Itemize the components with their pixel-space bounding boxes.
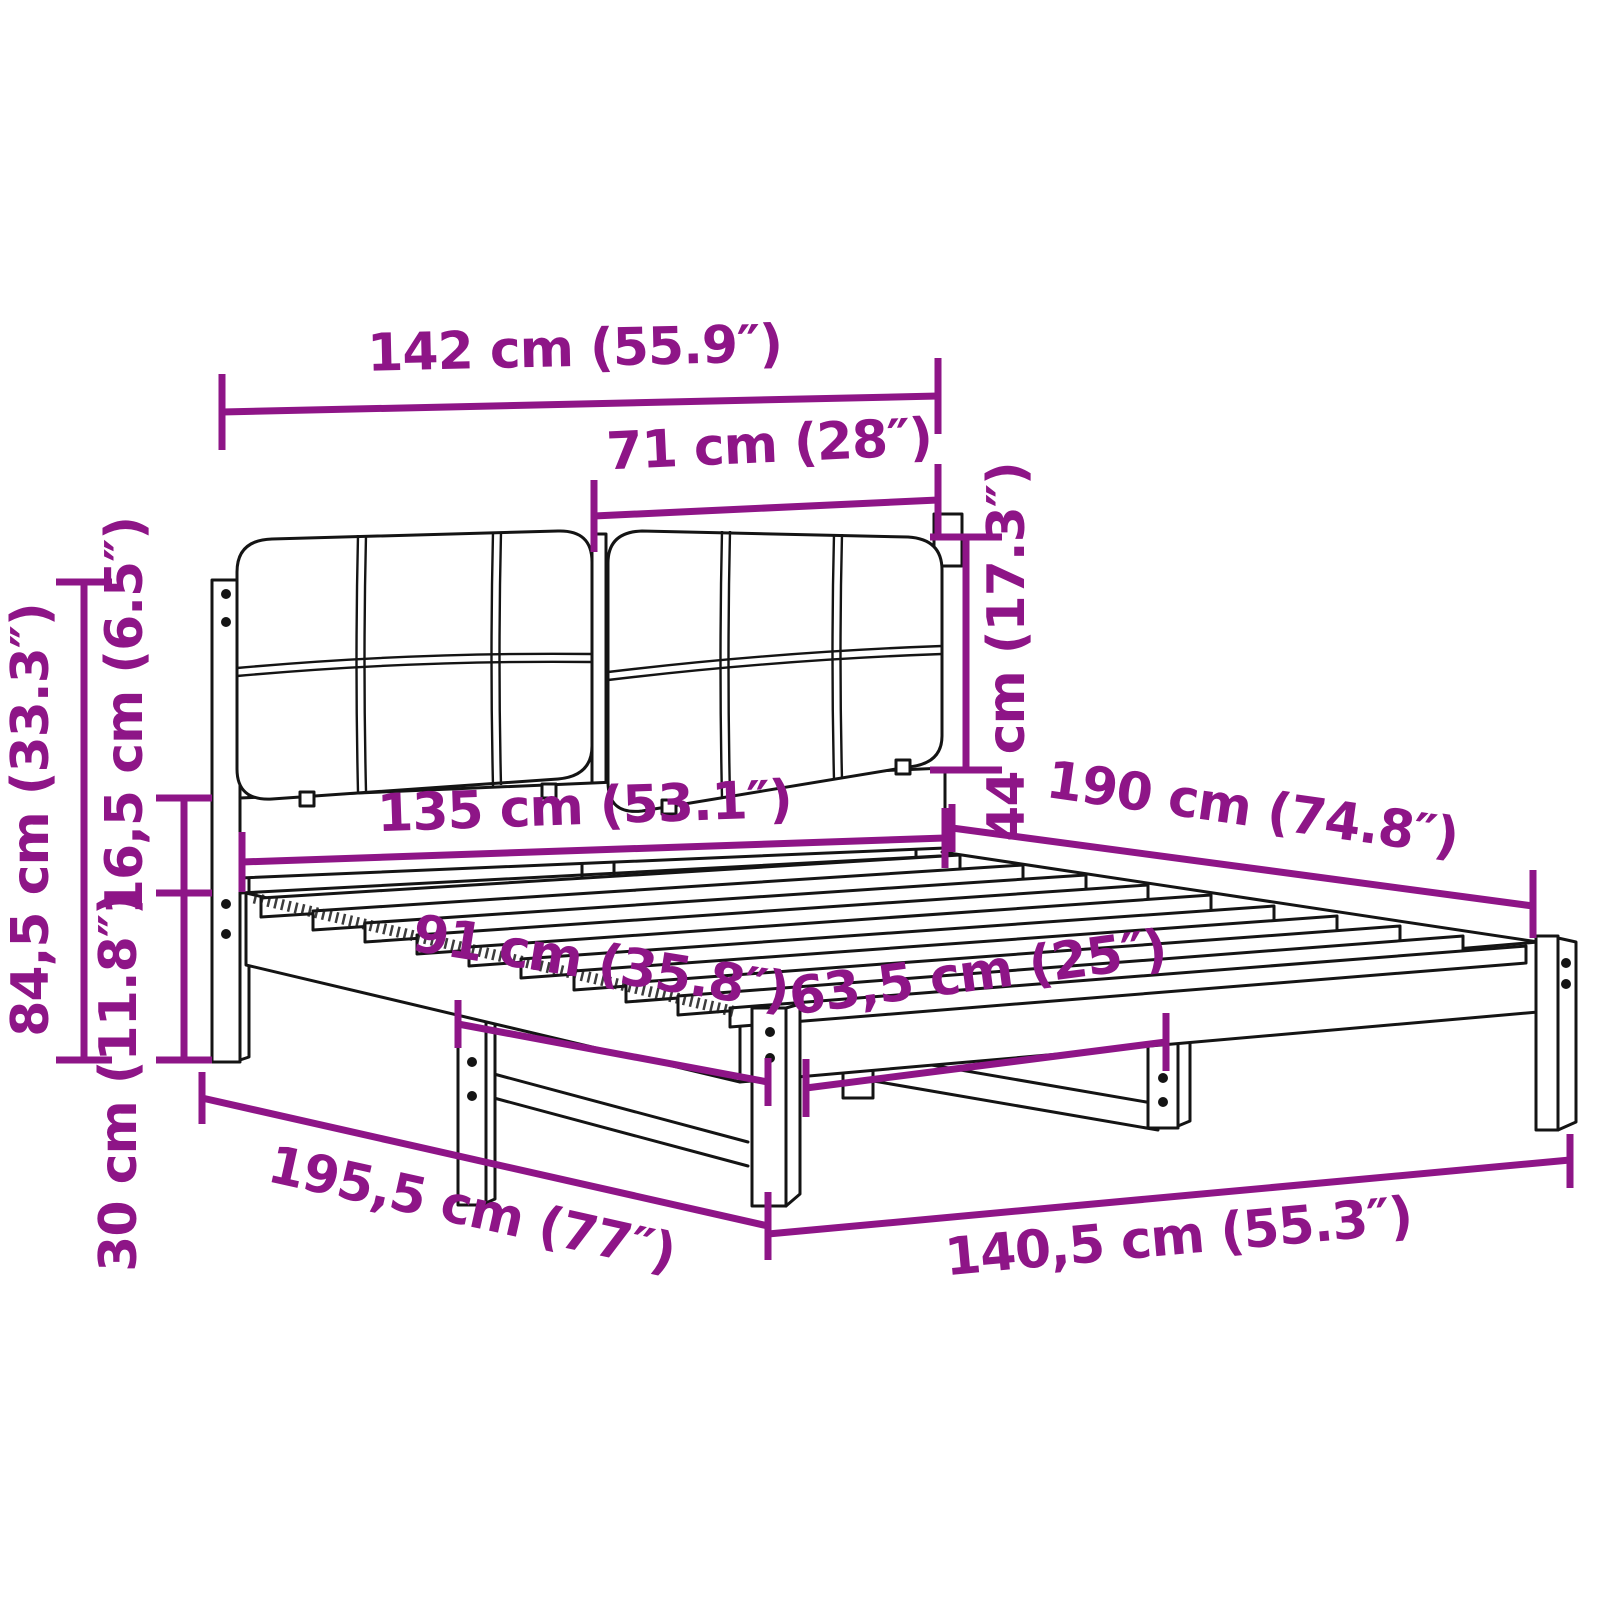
dim-base-height: 30 cm (11.8″)	[89, 892, 212, 1272]
dim-label-142: 142 cm (55.9″)	[367, 314, 783, 383]
front-right-leg	[1536, 936, 1576, 1130]
dim-label-44: 44 cm (17.3″)	[977, 462, 1037, 842]
front-left-leg	[752, 1004, 800, 1206]
bed-drawing	[212, 514, 1576, 1206]
dim-label-71: 71 cm (28″)	[605, 408, 933, 483]
dimension-diagram: 142 cm (55.9″) 71 cm (28″) 44 cm (17.3″)…	[0, 0, 1600, 1600]
headboard-cushion-left	[237, 531, 592, 799]
dim-label-16-5: 16,5 cm (6.5″)	[95, 517, 155, 915]
dim-label-84-5: 84,5 cm (33.3″)	[1, 603, 61, 1037]
dim-total-width: 140,5 cm (55.3″)	[768, 1134, 1570, 1288]
dim-rail-height: 16,5 cm (6.5″)	[95, 517, 212, 915]
bed-frame-diagram: 142 cm (55.9″) 71 cm (28″) 44 cm (17.3″)…	[0, 0, 1600, 1600]
dim-label-30: 30 cm (11.8″)	[89, 892, 149, 1272]
dim-label-140-5: 140,5 cm (55.3″)	[942, 1186, 1414, 1288]
